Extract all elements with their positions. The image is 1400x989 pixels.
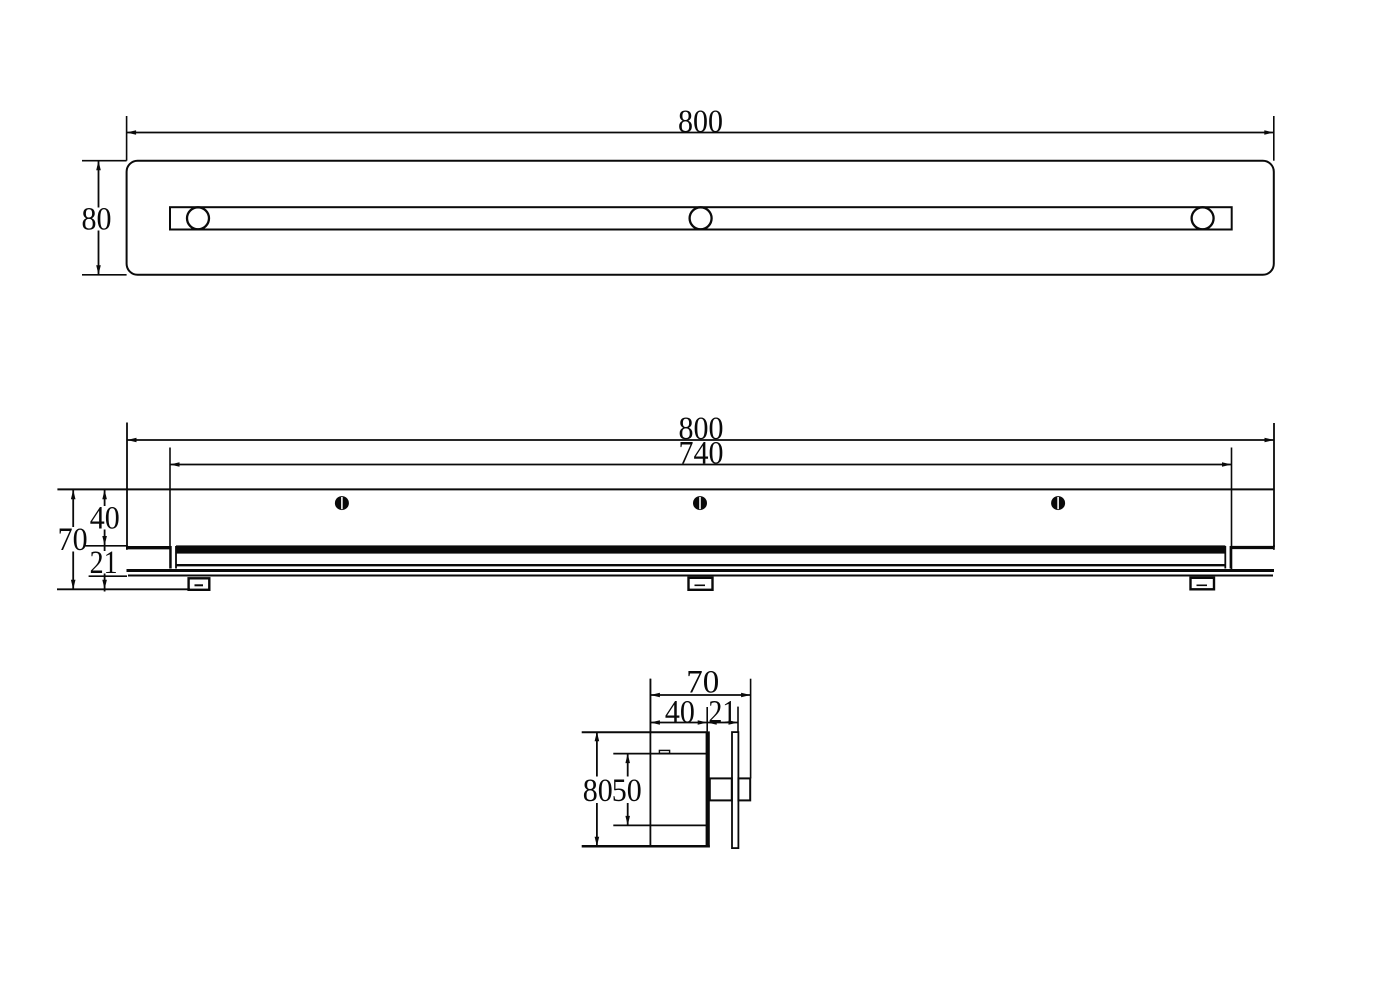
svg-text:740: 740 <box>679 436 724 472</box>
svg-text:21: 21 <box>708 695 736 731</box>
svg-text:50: 50 <box>612 773 642 809</box>
svg-text:800: 800 <box>678 104 723 140</box>
svg-text:80: 80 <box>583 773 613 809</box>
svg-text:70: 70 <box>58 522 88 558</box>
svg-text:80: 80 <box>82 202 112 238</box>
svg-text:21: 21 <box>90 545 118 581</box>
svg-text:40: 40 <box>90 501 120 537</box>
svg-text:40: 40 <box>665 695 695 731</box>
